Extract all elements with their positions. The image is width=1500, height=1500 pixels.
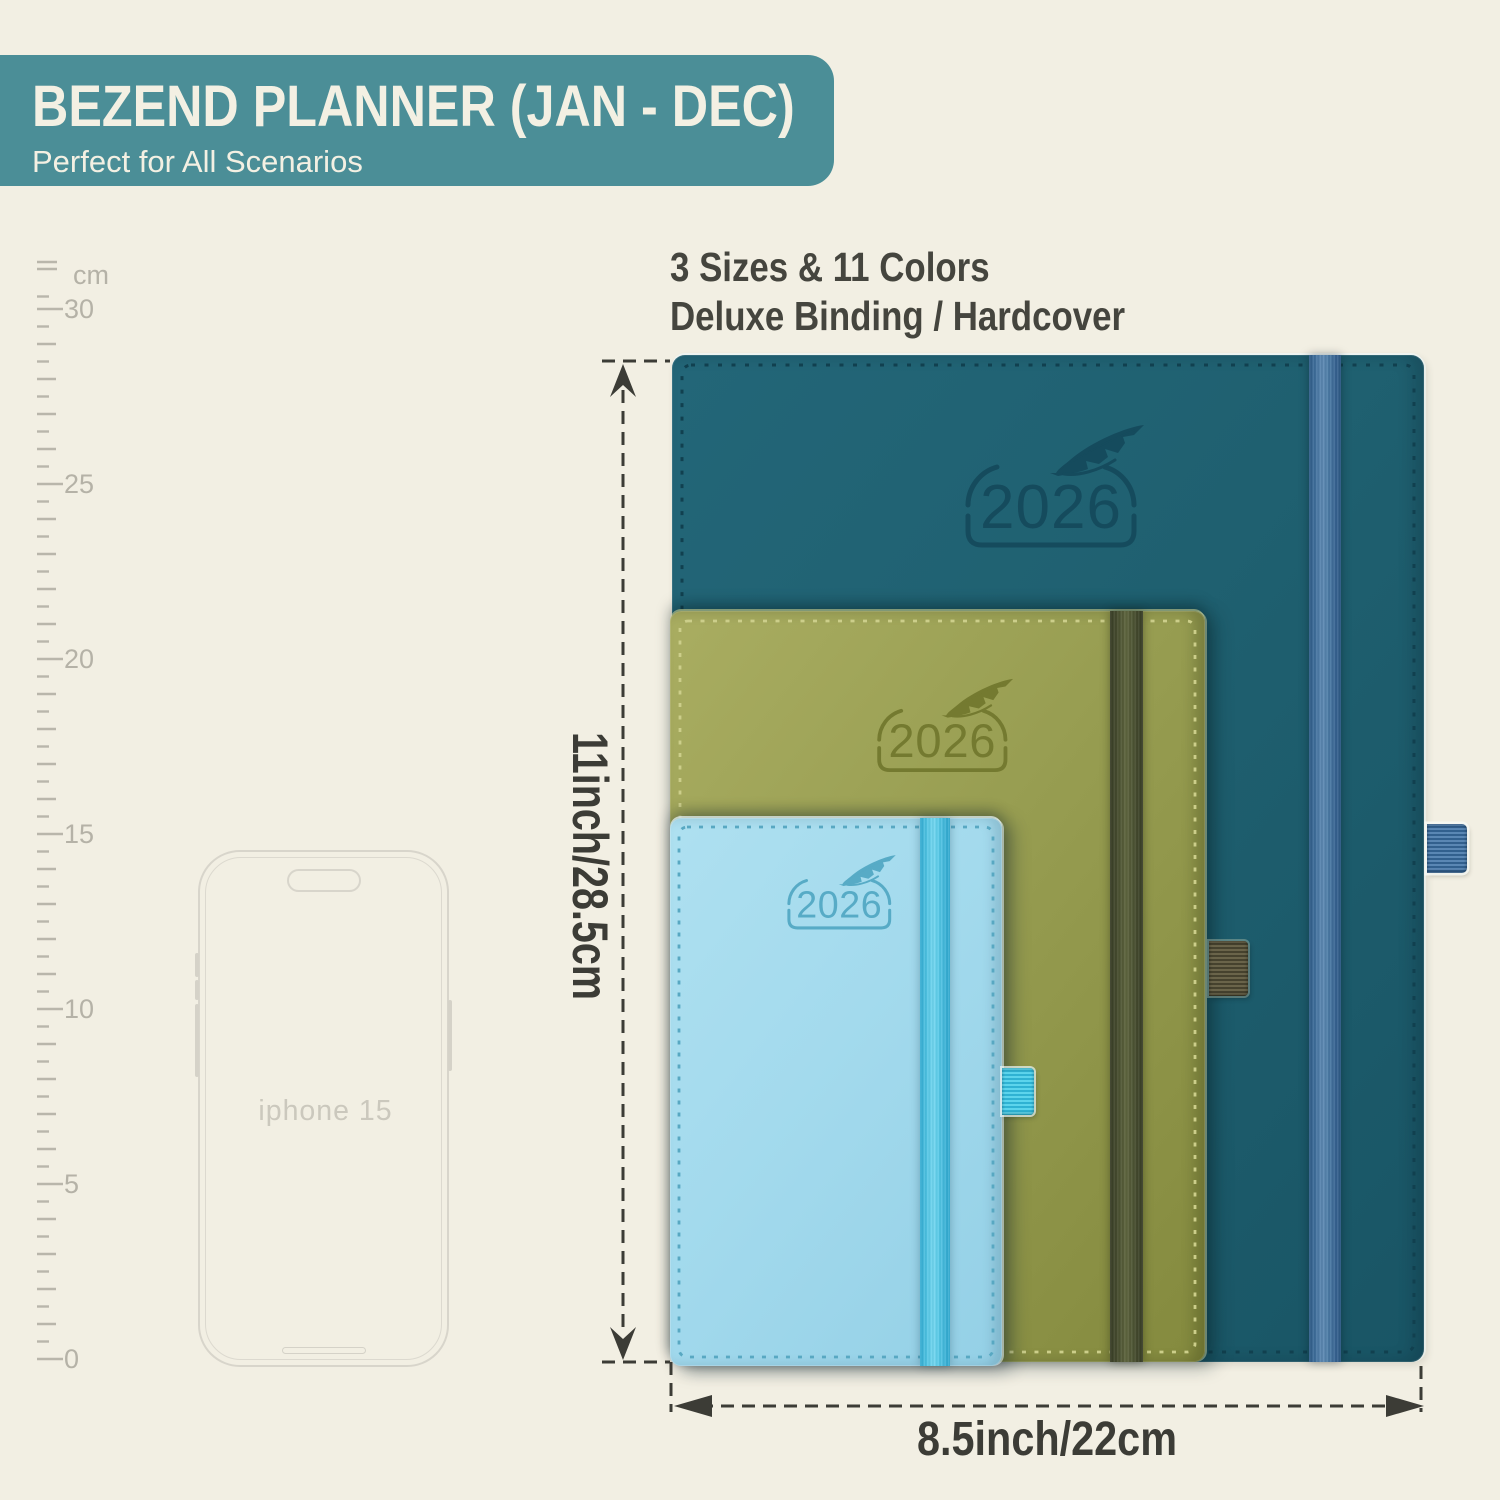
svg-text:8.5inch/22cm: 8.5inch/22cm — [917, 1413, 1177, 1466]
svg-text:11inch/28.5cm: 11inch/28.5cm — [562, 732, 618, 1000]
